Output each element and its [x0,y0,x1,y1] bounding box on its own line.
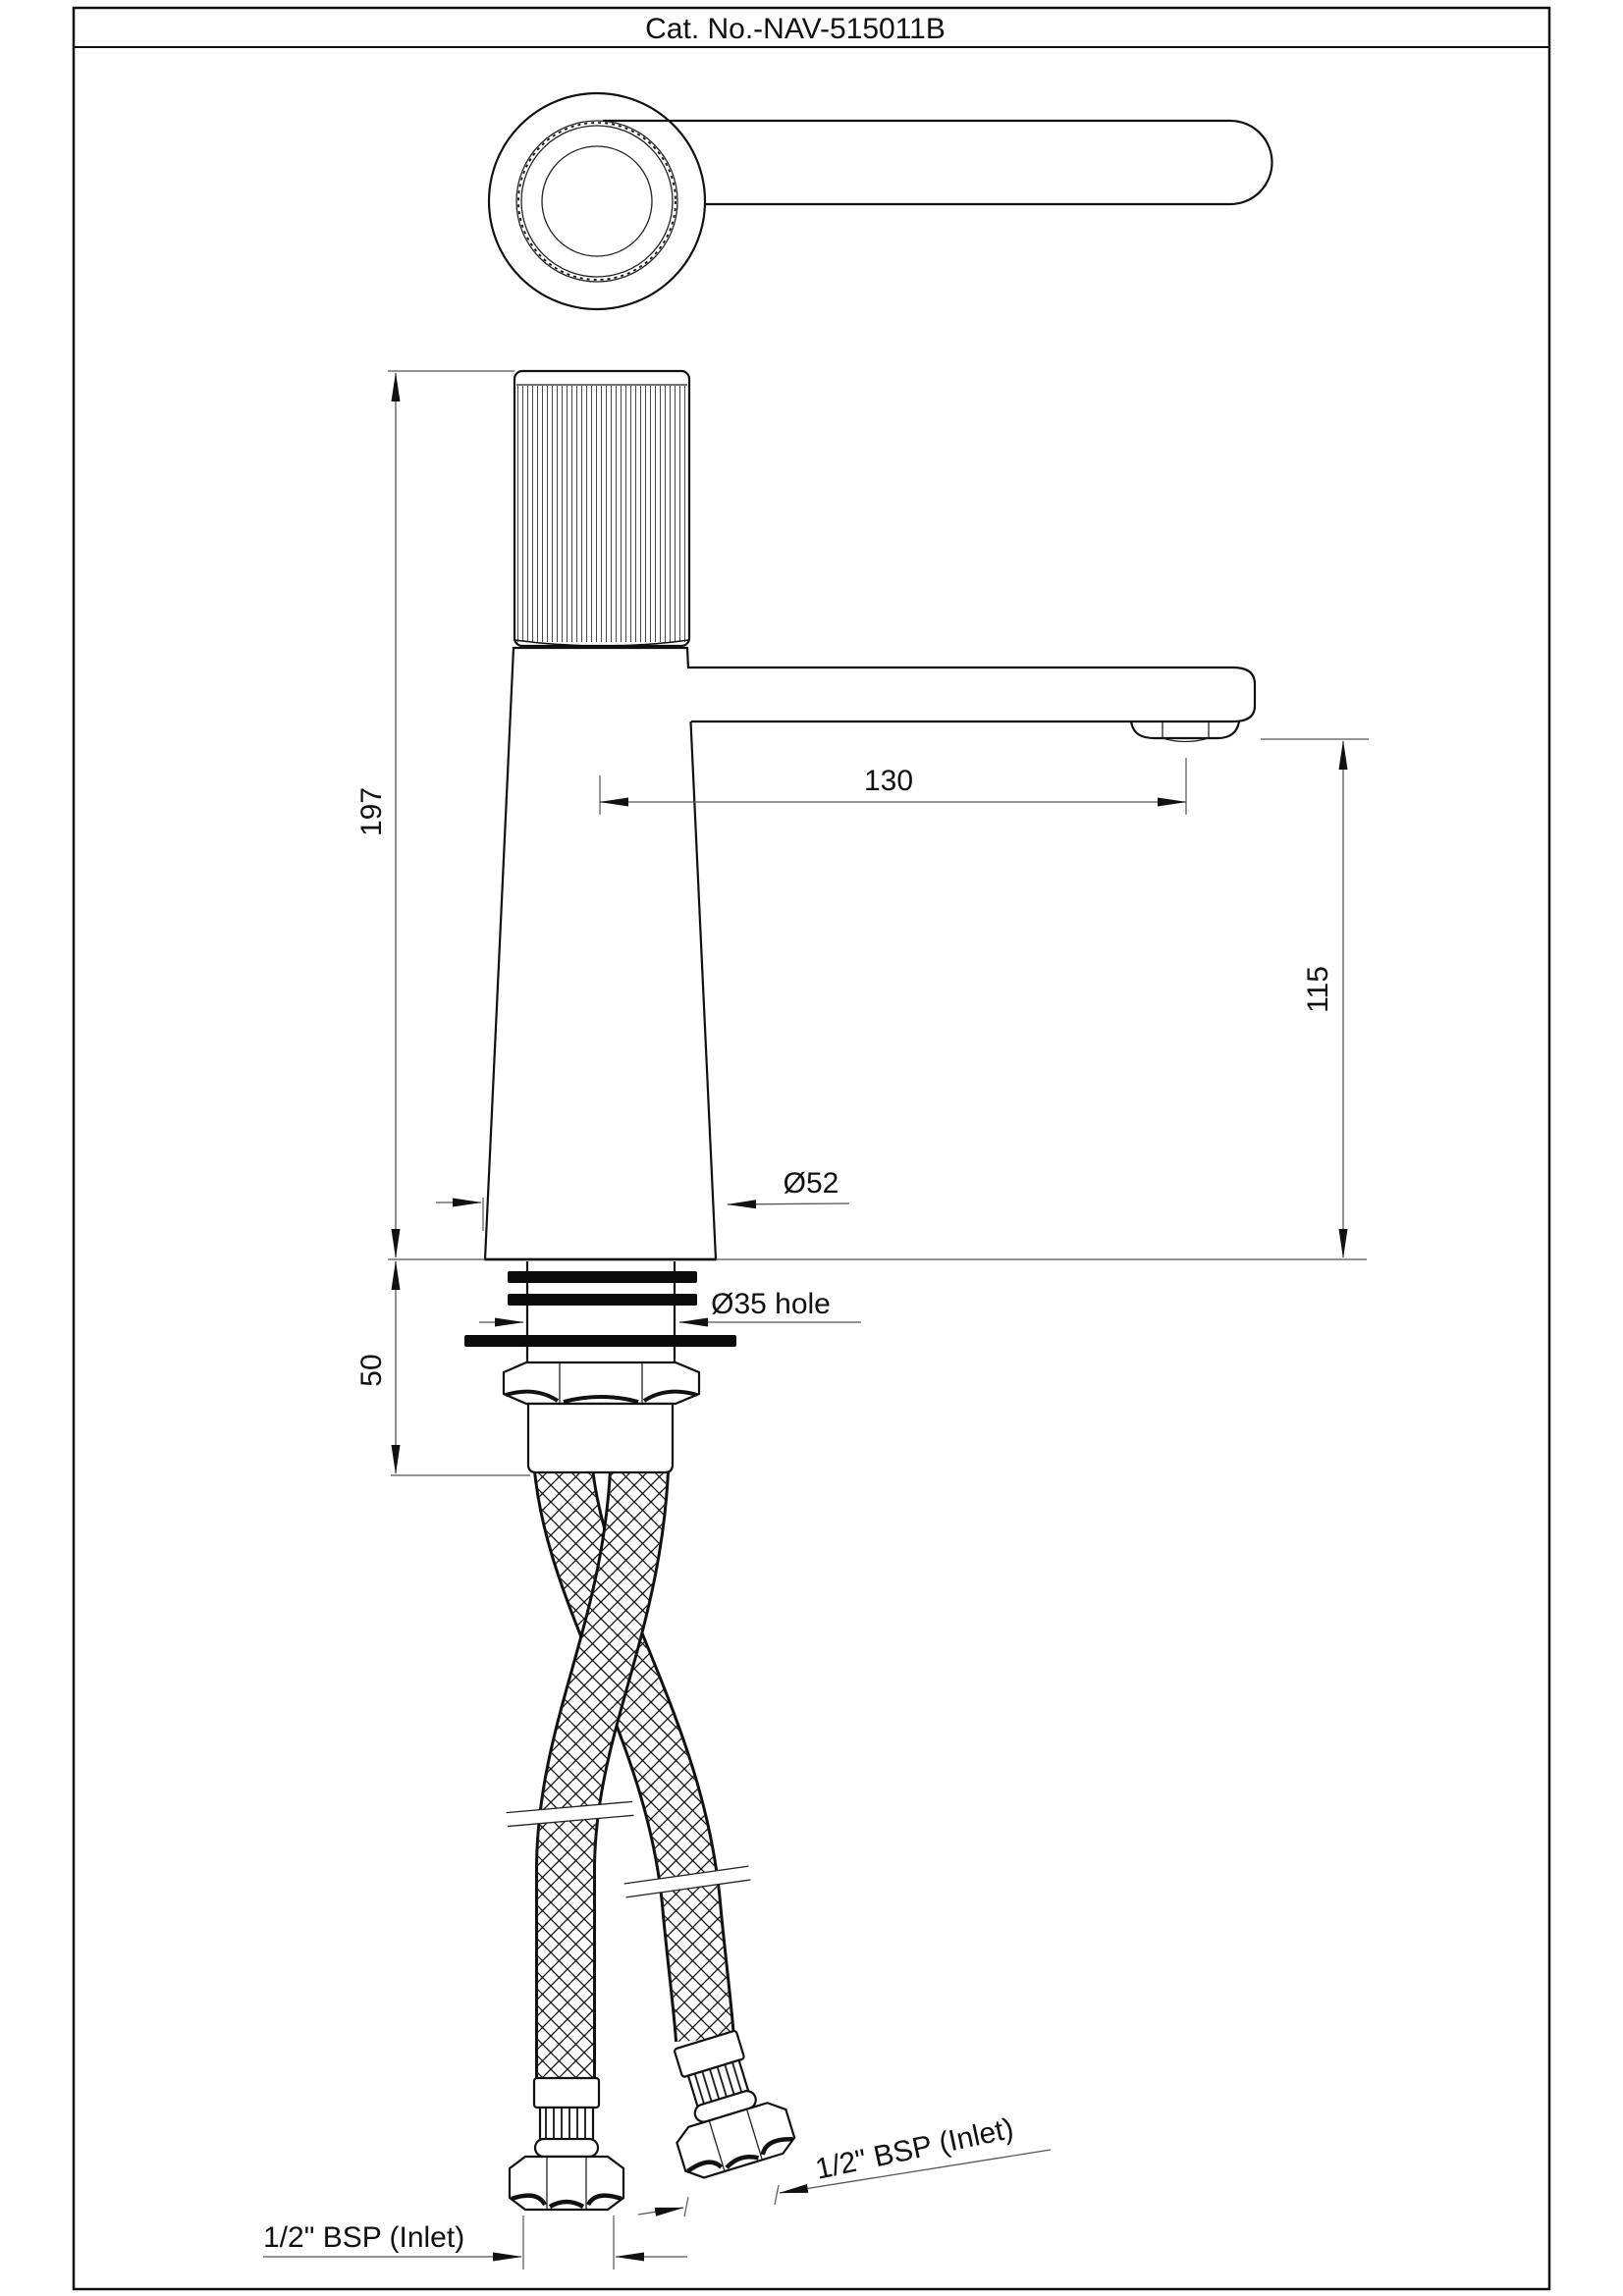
fitting-collar [534,2078,599,2108]
catalog-number-title: Cat. No.-NAV-515011B [645,13,946,45]
inlet-left-text: 1/2" BSP (Inlet) [263,2221,464,2254]
border-frame [74,8,1549,2289]
dim-base-diameter-label: Ø52 [784,1167,839,1200]
dim-spout-reach-label: 130 [864,765,913,797]
mounting-flange [464,1335,736,1347]
drawing-sheet: Cat. No.-NAV-515011B [0,0,1623,2296]
dim-total-height-label: 197 [355,787,388,836]
sheet-frame: Cat. No.-NAV-515011B [74,8,1549,2289]
dim-mounting-hole-label: Ø35 hole [711,1288,831,1320]
washer [508,1271,697,1283]
knob-knurl-texture [517,386,686,642]
threaded-shank [528,1404,673,1472]
dim-shank-length-label: 50 [355,1354,388,1386]
dim-spout-height-label: 115 [1302,966,1334,1013]
handle-knob [514,371,689,646]
fitting-ring [535,2139,598,2157]
fitting-ribs-texture [541,2109,592,2140]
washer [508,1294,697,1306]
faucet-body [485,648,716,1259]
technical-drawing-canvas: Cat. No.-NAV-515011B [0,0,1623,2296]
